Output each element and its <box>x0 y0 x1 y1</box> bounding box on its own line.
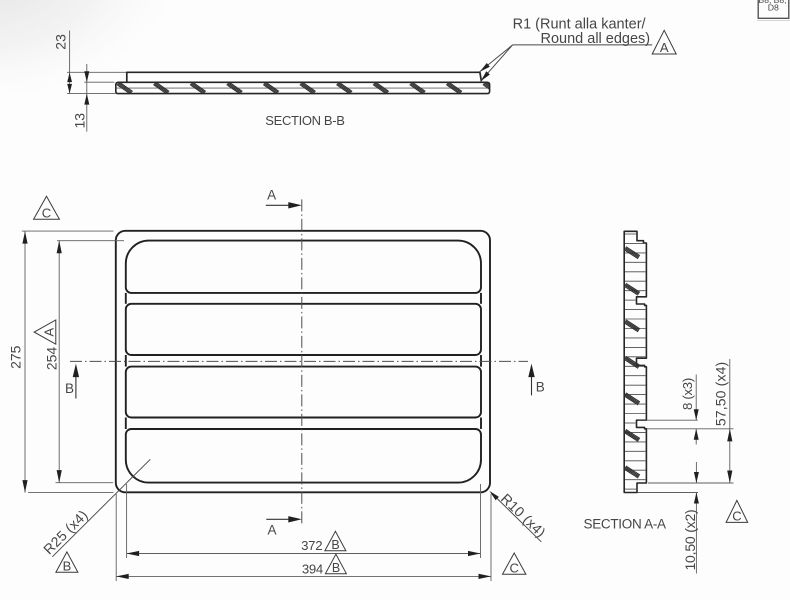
svg-text:A: A <box>267 523 276 538</box>
svg-text:8 (x3): 8 (x3) <box>680 378 695 410</box>
svg-text:13: 13 <box>71 113 87 129</box>
svg-text:B: B <box>332 561 340 575</box>
svg-text:B: B <box>536 380 545 395</box>
svg-text:254: 254 <box>43 347 59 371</box>
svg-text:275: 275 <box>8 345 24 369</box>
svg-text:23: 23 <box>52 34 68 50</box>
svg-text:C: C <box>42 205 51 220</box>
svg-text:A: A <box>660 40 669 55</box>
svg-text:R1 (Runt alla kanter/: R1 (Runt alla kanter/ <box>513 16 647 32</box>
svg-text:B: B <box>331 538 339 552</box>
svg-text:372: 372 <box>301 538 322 553</box>
svg-text:SECTION A-A: SECTION A-A <box>584 517 667 532</box>
svg-text:C: C <box>510 560 519 575</box>
svg-text:394: 394 <box>302 561 323 576</box>
svg-text:D8: D8 <box>768 3 779 13</box>
svg-text:A: A <box>267 188 276 203</box>
svg-text:A: A <box>42 327 57 336</box>
svg-text:B: B <box>65 381 74 396</box>
svg-text:SECTION B-B: SECTION B-B <box>265 113 344 128</box>
svg-text:57,50 (x4): 57,50 (x4) <box>712 362 728 427</box>
svg-text:C: C <box>732 509 741 524</box>
svg-text:B: B <box>63 558 72 573</box>
svg-text:10,50 (x2): 10,50 (x2) <box>682 509 698 570</box>
